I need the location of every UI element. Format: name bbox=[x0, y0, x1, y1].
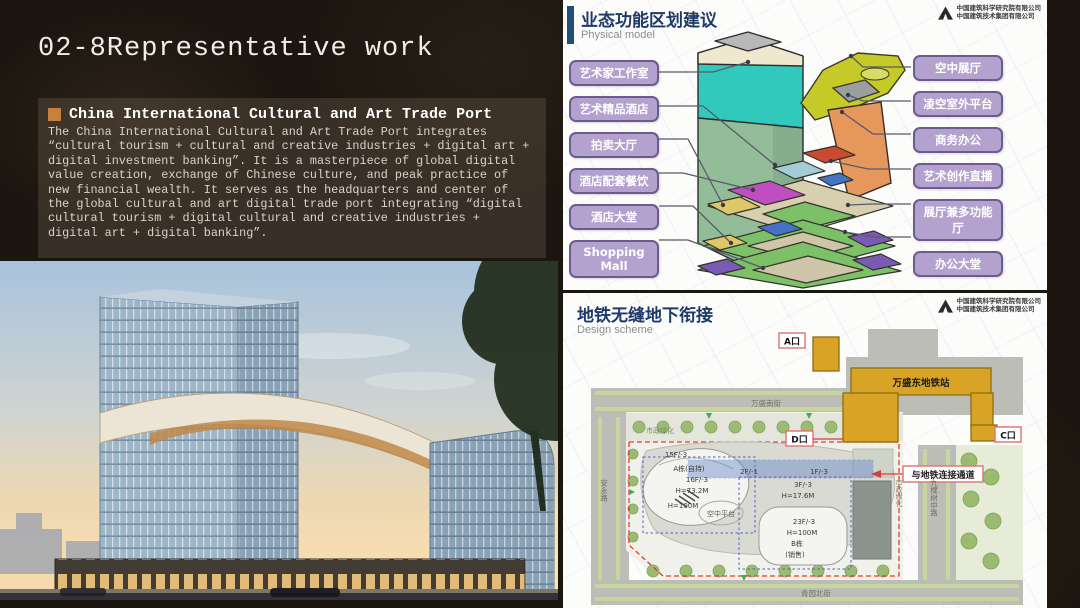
panel-metro-connection: 地铁无缝地下衔接 Design scheme 中国建筑科学研究院有限公司 中国建… bbox=[563, 293, 1047, 608]
project-summary-card: China International Cultural and Art Tra… bbox=[38, 98, 546, 258]
a-floors-label: 16F/-3 bbox=[686, 476, 708, 484]
project-description: The China International Cultural and Art… bbox=[48, 125, 536, 240]
connection-label: 与地铁连接通道 bbox=[911, 469, 974, 481]
pod3-label: 3F/-3 bbox=[794, 481, 812, 489]
a-name-label: A栋(自持) bbox=[673, 464, 705, 473]
logo-triangle-icon bbox=[938, 299, 953, 313]
sky-platform-label: 空中平台 bbox=[707, 509, 735, 518]
a-height-label: H=73.2M bbox=[676, 487, 709, 495]
label-aerial-outdoor-platform: 凌空室外平台 bbox=[913, 91, 1003, 117]
building-rendering-image bbox=[0, 261, 558, 600]
a-height2-label: H=100M bbox=[668, 502, 699, 510]
pod1-label: 1F/-3 bbox=[810, 468, 828, 476]
street-west-label: 安永路 bbox=[599, 478, 608, 502]
page-title: 02-8Representative work bbox=[38, 34, 434, 64]
function-labels-right: 空中展厅 凌空室外平台 商务办公 艺术创作直播 展厅兼多功能厅 办公大堂 bbox=[913, 55, 1003, 277]
metro-passage-overlay bbox=[688, 460, 873, 478]
project-heading: China International Cultural and Art Tra… bbox=[69, 106, 492, 123]
car bbox=[270, 588, 340, 597]
label-auction-hall: 拍卖大厅 bbox=[569, 132, 659, 158]
label-exhibition-multifunction-hall: 展厅兼多功能厅 bbox=[913, 199, 1003, 241]
label-shopping-mall: Shopping Mall bbox=[569, 240, 659, 278]
function-labels-left: 艺术家工作室 艺术精品酒店 拍卖大厅 酒店配套餐饮 酒店大堂 Shopping … bbox=[569, 60, 659, 278]
a-floors-top-label: 15F/-3 bbox=[665, 451, 687, 459]
b-sale-label: (销售) bbox=[785, 550, 805, 559]
company-logo: 中国建筑科学研究院有限公司 中国建筑技术集团有限公司 bbox=[938, 298, 1042, 314]
orange-bullet-icon bbox=[48, 108, 61, 121]
logo-line1: 中国建筑科学研究院有限公司 bbox=[957, 298, 1042, 306]
presentation-slide: 02-8Representative work China Internatio… bbox=[0, 0, 1080, 608]
b-height-label: H=100M bbox=[787, 529, 818, 537]
b-name-label: B栋 bbox=[791, 539, 803, 548]
greening-label: 市政绿化 bbox=[646, 426, 674, 435]
exit-a-label: A口 bbox=[784, 337, 800, 348]
label-art-livestream: 艺术创作直播 bbox=[913, 163, 1003, 189]
b-floors-label: 23F/-3 bbox=[793, 518, 815, 526]
street-east-label: 九棵树中路 bbox=[929, 479, 938, 517]
greening-label-vertical: 市政绿化 bbox=[895, 478, 903, 508]
panel-functional-zoning: 业态功能区划建议 Physical model 中国建筑科学研究院有限公司 中国… bbox=[563, 0, 1047, 290]
label-art-boutique-hotel: 艺术精品酒店 bbox=[569, 96, 659, 122]
label-hotel-lobby: 酒店大堂 bbox=[569, 204, 659, 230]
label-artist-studio: 艺术家工作室 bbox=[569, 60, 659, 86]
logo-line2: 中国建筑技术集团有限公司 bbox=[957, 306, 1042, 314]
car bbox=[60, 588, 106, 596]
pod3-height-label: H=17.6M bbox=[782, 492, 815, 500]
street-south-label: 青园北街 bbox=[801, 588, 831, 598]
label-office-lobby: 办公大堂 bbox=[913, 251, 1003, 277]
left-tower bbox=[100, 289, 298, 591]
label-hotel-dining: 酒店配套餐饮 bbox=[569, 168, 659, 194]
street-north-label: 万盛南街 bbox=[751, 398, 781, 408]
pod2-label: 2F/-1 bbox=[740, 468, 758, 476]
metro-station-label: 万盛东地铁站 bbox=[891, 377, 950, 389]
label-business-office: 商务办公 bbox=[913, 127, 1003, 153]
label-sky-exhibition-hall: 空中展厅 bbox=[913, 55, 1003, 81]
panel-bottom-title: 地铁无缝地下衔接 bbox=[577, 301, 713, 326]
site-plan-map: 万盛东地铁站 A口 D口 C口 与地铁连接通道 bbox=[591, 329, 1023, 605]
exit-d-label: D口 bbox=[791, 435, 807, 446]
exit-c-label: C口 bbox=[1000, 431, 1016, 442]
